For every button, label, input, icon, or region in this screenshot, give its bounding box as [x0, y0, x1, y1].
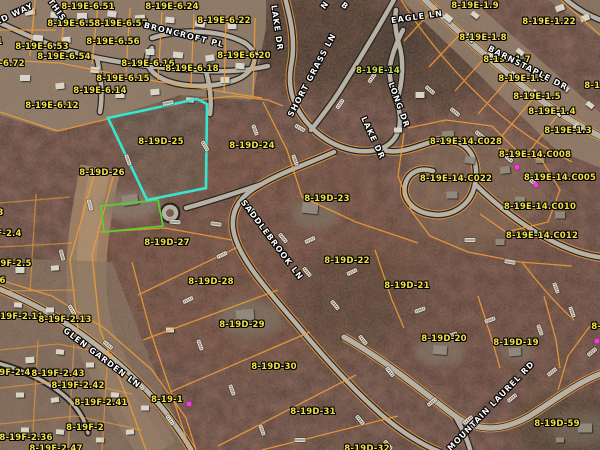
parcel-label[interactable]: 8-19E-14.C005	[524, 173, 596, 183]
parcel-label[interactable]: 8-19F-2.3	[0, 208, 4, 218]
street-label: B	[339, 0, 350, 12]
parcel-label[interactable]: 8-19E-14.C008	[499, 150, 571, 160]
parcel-label[interactable]: 8-19F-2.4	[0, 229, 22, 239]
parcel-label[interactable]: 8-19E-6.24	[145, 2, 199, 12]
parcel-label[interactable]: 8-19F-2.43	[31, 369, 84, 379]
parcel-label[interactable]: 8-19D-30	[251, 362, 296, 372]
parcel-label[interactable]: 8-19E-6.12	[25, 101, 79, 111]
parcel-label[interactable]: 8-19E-1.3	[544, 126, 591, 136]
parcel-label[interactable]: 8-19E-6.53	[15, 42, 69, 52]
parcel-label[interactable]: 8-19E-6.54	[37, 52, 91, 62]
parcel-label[interactable]: 8-19D-24	[229, 141, 274, 151]
street-label: EAGLE LN	[391, 9, 444, 25]
parcel-label[interactable]: 8-19E-1.4	[528, 107, 575, 117]
parcel-label[interactable]: 8-19E-6.57	[94, 19, 148, 29]
parcel-label[interactable]: 8-19E-6.52	[47, 19, 101, 29]
parcel-label[interactable]: 8-19E-6.15	[96, 74, 150, 84]
parcel-label[interactable]: 8-19D-31	[290, 407, 335, 417]
parcel-label[interactable]: 8-19D-27	[144, 238, 189, 248]
parcel-label[interactable]: 8-19F-2.6	[0, 276, 6, 286]
parcel-label[interactable]: 8-19D-29	[219, 320, 264, 330]
parcel-label[interactable]: 8-19F-2.42	[51, 381, 104, 391]
parcel-label[interactable]: 8-19D-25	[138, 137, 183, 147]
parcel-label[interactable]: 8-19E-1.22	[522, 17, 576, 27]
parcel-label[interactable]: 8-19E-6.56	[86, 37, 140, 47]
parcel-label[interactable]: 8-19E-6.22	[197, 16, 251, 26]
parcel-label[interactable]: 8-19D-19	[493, 338, 538, 348]
parcel-label[interactable]: 8-19F-2	[66, 423, 104, 433]
street-label: RD WAY	[0, 1, 35, 27]
parcel-label[interactable]: 8-19F-2.36	[0, 433, 53, 443]
parcel-label[interactable]: 8-19D-32	[344, 444, 389, 450]
parcel-label[interactable]: 8-19D-20	[421, 334, 466, 344]
parcel-label[interactable]: 8-19E-6.14	[73, 86, 127, 96]
parcel-label[interactable]: 8-19E-14.C022	[420, 174, 492, 184]
map-viewport[interactable]: 8-19E-6.518-19E-6.248-19E-6.528-19E-6.57…	[0, 0, 600, 450]
parcel-label[interactable]: 8-19D-28	[188, 277, 233, 287]
street-label: LAKE DR	[359, 115, 387, 161]
parcel-label[interactable]: 8-19E-14	[356, 66, 400, 76]
labels-layer: 8-19E-6.518-19E-6.248-19E-6.528-19E-6.57…	[0, 0, 600, 450]
parcel-label[interactable]: 8-19F-2.47	[29, 444, 82, 450]
parcel-label[interactable]: 8-19F-2.13	[38, 315, 91, 325]
parcel-label[interactable]: 8-19E-14.C010	[504, 202, 576, 212]
street-label: N	[319, 0, 331, 11]
parcel-label[interactable]: 8-19E-6.71	[0, 37, 3, 47]
street-label: BARNSTAPLE DR	[487, 44, 570, 92]
parcel-label[interactable]: 8-19-1	[151, 395, 183, 405]
street-label: SADDLEBROOK LN	[239, 198, 305, 282]
parcel-label[interactable]: 8-19E-1.8	[459, 33, 506, 43]
parcel-label[interactable]: 8-19D-26	[79, 168, 124, 178]
parcel-label[interactable]: 8-19E-14.C012	[506, 231, 578, 241]
parcel-label[interactable]: 8-19E-6.20	[217, 51, 271, 61]
parcel-label[interactable]: 8-19D-18	[591, 322, 600, 332]
street-label: LAKE DR	[269, 4, 284, 51]
parcel-label[interactable]: 8-19E-1.9	[451, 1, 498, 11]
parcel-label[interactable]: 8-19D-21	[384, 281, 429, 291]
street-label: LONG DR	[387, 81, 412, 129]
parcel-label[interactable]: 8-19E-6.51	[61, 2, 115, 12]
parcel-label[interactable]: 8-19F-2.41	[74, 398, 127, 408]
parcel-label[interactable]: 8-19E-1.5	[513, 92, 560, 102]
parcel-label[interactable]: 8-19E-6.72	[0, 59, 25, 69]
parcel-label[interactable]: 8-19E-14.C028	[430, 137, 502, 147]
parcel-label[interactable]: 8-19D-59	[534, 419, 579, 429]
parcel-label[interactable]: 8-19D-22	[324, 256, 369, 266]
street-label: MOUNTAIN LAUREL RD	[446, 359, 537, 450]
parcel-label[interactable]: 8-19E-6.18	[165, 64, 219, 74]
parcel-label[interactable]: 8-19F-2.5	[0, 259, 32, 269]
parcel-label[interactable]: 8-19F-2.11	[0, 312, 44, 322]
parcel-label[interactable]: 8-19D-23	[304, 194, 349, 204]
parcel-label[interactable]: 8-19E-1.2	[584, 81, 600, 91]
street-label: SHORT GRASS LN	[286, 32, 338, 119]
